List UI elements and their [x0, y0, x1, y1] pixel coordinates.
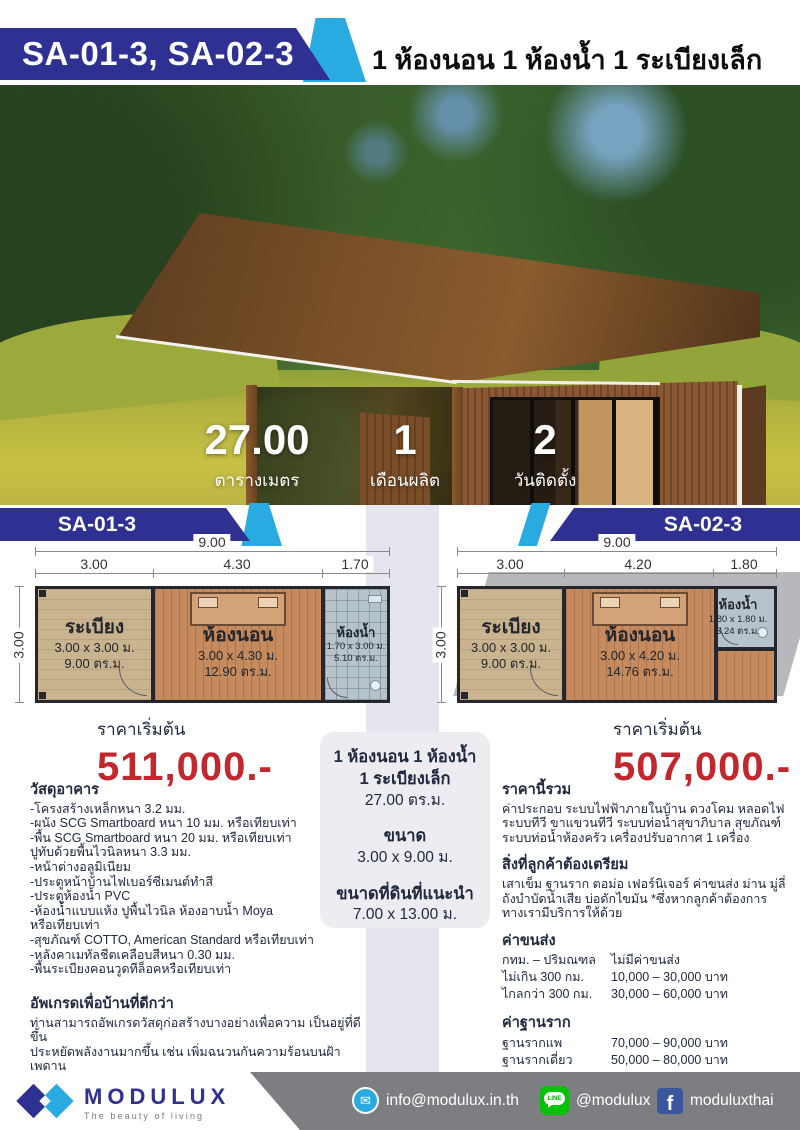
line-icon: LINE [540, 1086, 569, 1115]
house-render: 27.00 ตารางเมตร 1 เดือนผลิต 2 วันติดตั้ง [0, 85, 800, 505]
plan-a-seg3: 1.70 [336, 556, 373, 572]
email-address[interactable]: info@modulux.in.th [386, 1092, 519, 1110]
line-id[interactable]: @modulux [576, 1092, 650, 1110]
plan-b-seg3: 1.80 [725, 556, 762, 572]
stat-months: 1 เดือนผลิต [345, 419, 465, 494]
modulux-logo: MODULUX The beauty of living [14, 1079, 230, 1128]
foundation-type: ฐานรากเดี่ยว [502, 1052, 611, 1069]
plan-a-body: ระเบียง 3.00 x 3.00 ม. 9.00 ตร.ม. ห้องนอ… [35, 586, 390, 703]
room-name: ห้องนอน [605, 624, 676, 648]
bed-symbol [190, 592, 286, 626]
room-dim: 3.00 x 4.20 ม. [600, 648, 680, 664]
contact-email[interactable]: ✉ info@modulux.in.th [352, 1087, 519, 1114]
stat-months-value: 1 [345, 419, 465, 461]
materials-item: -พื้นระเบียงคอนวูดทีล็อคหรือเทียบเท่า [30, 962, 335, 977]
materials-item: -หน้าต่างอลูมิเนียม [30, 860, 335, 875]
shipping-fee: ไม่มีค่าขนส่ง [611, 952, 794, 969]
summary-box: 1 ห้องนอน 1 ห้องน้ำ 1 ระเบียงเล็ก 27.00 … [320, 732, 490, 928]
logo-text-block: MODULUX The beauty of living [84, 1086, 230, 1121]
foundation-fee: 70,000 – 90,000 บาท [611, 1035, 794, 1052]
stat-install-days: 2 วันติดตั้ง [485, 419, 605, 494]
materials-item: -ประตูหน้าบ้านไฟเบอร์ซีเมนต์ทำสี [30, 875, 335, 890]
plan-a-seg1: 3.00 [75, 556, 112, 572]
footer: MODULUX The beauty of living ✉ info@modu… [0, 1072, 800, 1130]
sink-symbol [368, 595, 382, 603]
stat-area: 27.00 ตารางเมตร [177, 419, 337, 494]
plan-b-bath-label: ห้องน้ำ 1.80 x 1.80 ม. 3.24 ตร.ม. [686, 597, 790, 639]
brand-tagline: The beauty of living [84, 1111, 230, 1121]
summary-land-label: ขนาดที่ดินที่แนะนำ [320, 883, 490, 905]
included-section: ราคานี้รวม ค่าประกอบ ระบบไฟฟ้าภายในบ้าน … [502, 783, 794, 845]
price-sa-01-3: ราคาเริ่มต้น 511,000.- [97, 716, 273, 790]
room-name: ระเบียง [65, 616, 124, 640]
room-name: ระเบียง [481, 616, 540, 640]
shipping-fee: 30,000 – 60,000 บาท [611, 986, 794, 1003]
room-dim: 3.00 x 4.30 ม. [198, 648, 278, 664]
included-body: ค่าประกอบ ระบบไฟฟ้าภายในบ้าน ดวงโคม หลอด… [502, 802, 794, 846]
plan-b-seg2: 4.20 [619, 556, 656, 572]
room-area: 12.90 ตร.ม. [204, 664, 271, 680]
materials-item: -ประตูห้องน้ำ PVC [30, 889, 335, 904]
price-sa-02-3: ราคาเริ่มต้น 507,000.- [613, 716, 791, 790]
summary-line1: 1 ห้องนอน 1 ห้องน้ำ [320, 746, 490, 768]
facebook-id[interactable]: moduluxthai [690, 1092, 774, 1110]
house-side-wall [740, 385, 766, 505]
plan-b-total-width: 9.00 [598, 534, 635, 550]
floor-plan-sa-02-3: 9.00 3.00 4.20 1.80 3.00 ระเบียง 3.00 x … [457, 536, 777, 706]
plan-a-seg2: 4.30 [218, 556, 255, 572]
price-a-label: ราคาเริ่มต้น [97, 716, 273, 743]
contact-line[interactable]: LINE @modulux [540, 1086, 650, 1115]
stat-area-label: ตารางเมตร [177, 467, 337, 494]
brand-name: MODULUX [84, 1086, 230, 1108]
plan-b-total-dimline [457, 551, 777, 552]
included-title: ราคานี้รวม [502, 783, 794, 798]
shipping-zone: ไกลกว่า 300 กม. [502, 986, 611, 1003]
plan-a-room-bathroom: ห้องน้ำ 1.70 x 3.00 ม. 5.10 ตร.ม. [321, 589, 387, 700]
shipping-fee: 10,000 – 30,000 บาท [611, 969, 794, 986]
email-icon: ✉ [352, 1087, 379, 1114]
room-area: 5.10 ตร.ม. [334, 653, 378, 665]
door-arc [119, 668, 147, 696]
shipping-row: ไกลกว่า 300 กม. 30,000 – 60,000 บาท [502, 986, 794, 1003]
materials-item: หรือเทียบเท่า [30, 918, 335, 933]
materials-title: วัสดุอาคาร [30, 783, 335, 798]
shipping-title: ค่าขนส่ง [502, 934, 794, 949]
materials-item: -ผนัง SCG Smartboard หนา 10 มม. หรือเทีย… [30, 816, 335, 831]
room-dim: 1.70 x 3.00 ม. [327, 641, 386, 653]
materials-section: วัสดุอาคาร -โครงสร้างเหล็กหนา 3.2 มม. -ผ… [30, 783, 335, 977]
plan-a-room-bedroom: ห้องนอน 3.00 x 4.30 ม. 12.90 ตร.ม. [151, 589, 321, 700]
plan-a-total-width: 9.00 [193, 534, 230, 550]
plan-b-body: ระเบียง 3.00 x 3.00 ม. 9.00 ตร.ม. ห้องนอ… [457, 586, 777, 703]
prepare-body: เสาเข็ม ฐานราก ตอม่อ เฟอร์นิเจอร์ ค่าขนส… [502, 877, 794, 921]
materials-item: -หลังคาเมทัลชีตเคลือบสีหนา 0.30 มม. [30, 948, 335, 963]
materials-item: -ห้องน้ำแบบแห้ง ปูพื้นไวนิล ห้องอาบน้ำ M… [30, 904, 335, 919]
house-corner-trim [737, 385, 742, 505]
price-b-label: ราคาเริ่มต้น [613, 716, 791, 743]
door-arc [327, 678, 347, 698]
plan-b-seg1: 3.00 [491, 556, 528, 572]
foundation-row: ฐานรากเดี่ยว 50,000 – 80,000 บาท [502, 1052, 794, 1069]
room-area: 3.24 ตร.ม. [686, 626, 790, 638]
prepare-title: สิ่งที่ลูกค้าต้องเตรียม [502, 858, 794, 873]
flyer-page: SA-01-3, SA-02-3 1 ห้องนอน 1 ห้องน้ำ 1 ร… [0, 0, 800, 1130]
room-dim: 1.80 x 1.80 ม. [686, 614, 790, 626]
plan-a-side-dim: 3.00 [11, 627, 27, 662]
foundation-type: ฐานรากแพ [502, 1035, 611, 1052]
stat-install-value: 2 [485, 419, 605, 461]
stat-area-value: 27.00 [177, 419, 337, 461]
materials-item: -สุขภัณฑ์ COTTO, American Standard หรือเ… [30, 933, 335, 948]
materials-item: -พื้น SCG Smartboard หนา 20 มม. หรือเทีย… [30, 831, 335, 846]
plan-b-room-bathroom: ห้องน้ำ 1.80 x 1.80 ม. 3.24 ตร.ม. [714, 589, 774, 700]
shipping-row: ไม่เกิน 300 กม. 10,000 – 30,000 บาท [502, 969, 794, 986]
shipping-zone: ไม่เกิน 300 กม. [502, 969, 611, 986]
summary-size-label: ขนาด [320, 825, 490, 847]
facebook-icon: f [657, 1088, 683, 1114]
plan-a-segment-dimline [35, 573, 390, 574]
stat-months-label: เดือนผลิต [345, 467, 465, 494]
room-name: ห้องน้ำ [337, 625, 376, 641]
plan-b-bath-under-floor [718, 651, 774, 700]
room-area: 14.76 ตร.ม. [606, 664, 673, 680]
plan-b-code: SA-02-3 [664, 513, 742, 537]
room-dim: 3.00 x 3.00 ม. [54, 640, 134, 656]
summary-size: 3.00 x 9.00 ม. [320, 848, 490, 869]
contact-facebook[interactable]: f moduluxthai [657, 1088, 774, 1114]
plan-a-code: SA-01-3 [58, 513, 136, 537]
materials-item: ปูทับด้วยพื้นไวนิลหนา 3.3 มม. [30, 845, 335, 860]
prepare-section: สิ่งที่ลูกค้าต้องเตรียม เสาเข็ม ฐานราก ต… [502, 858, 794, 920]
modulux-logo-icon [14, 1079, 76, 1128]
stat-install-label: วันติดตั้ง [485, 467, 605, 494]
summary-area: 27.00 ตร.ม. [320, 791, 490, 812]
materials-item: -โครงสร้างเหล็กหนา 3.2 มม. [30, 802, 335, 817]
foundation-row: ฐานรากแพ 70,000 – 90,000 บาท [502, 1035, 794, 1052]
bed-symbol [592, 592, 688, 626]
page-title: 1 ห้องนอน 1 ห้องน้ำ 1 ระเบียงเล็ก [372, 38, 762, 81]
summary-line2: 1 ระเบียงเล็ก [320, 768, 490, 790]
room-dim: 3.00 x 3.00 ม. [471, 640, 551, 656]
model-codes: SA-01-3, SA-02-3 [22, 35, 294, 73]
room-name: ห้องนอน [203, 624, 274, 648]
plan-b-side-dim: 3.00 [433, 627, 449, 662]
shipping-zone: กทม. – ปริมณฑล [502, 952, 611, 969]
foundation-title: ค่าฐานราก [502, 1016, 794, 1031]
room-name: ห้องน้ำ [686, 597, 790, 614]
model-codes-banner: SA-01-3, SA-02-3 [0, 28, 330, 80]
shipping-row: กทม. – ปริมณฑล ไม่มีค่าขนส่ง [502, 952, 794, 969]
plan-b-segment-dimline [457, 573, 777, 574]
right-column: ราคานี้รวม ค่าประกอบ ระบบไฟฟ้าภายในบ้าน … [502, 783, 794, 1099]
door-arc [530, 668, 558, 696]
floor-plan-sa-01-3: 9.00 3.00 4.30 1.70 3.00 ระเบียง 3.00 x … [35, 536, 390, 706]
upgrade-title: อัพเกรดเพื่อบ้านที่ดีกว่า [30, 997, 370, 1012]
foundation-fee: 50,000 – 80,000 บาท [611, 1052, 794, 1069]
plan-b-room-porch: ระเบียง 3.00 x 3.00 ม. 9.00 ตร.ม. [460, 589, 562, 700]
room-area: 9.00 ตร.ม. [64, 656, 124, 672]
summary-land: 7.00 x 13.00 ม. [320, 905, 490, 926]
toilet-symbol [370, 680, 381, 691]
plan-a-room-porch: ระเบียง 3.00 x 3.00 ม. 9.00 ตร.ม. [38, 589, 151, 700]
shipping-section: ค่าขนส่ง กทม. – ปริมณฑล ไม่มีค่าขนส่ง ไม… [502, 934, 794, 1004]
plan-a-total-dimline [35, 551, 390, 552]
